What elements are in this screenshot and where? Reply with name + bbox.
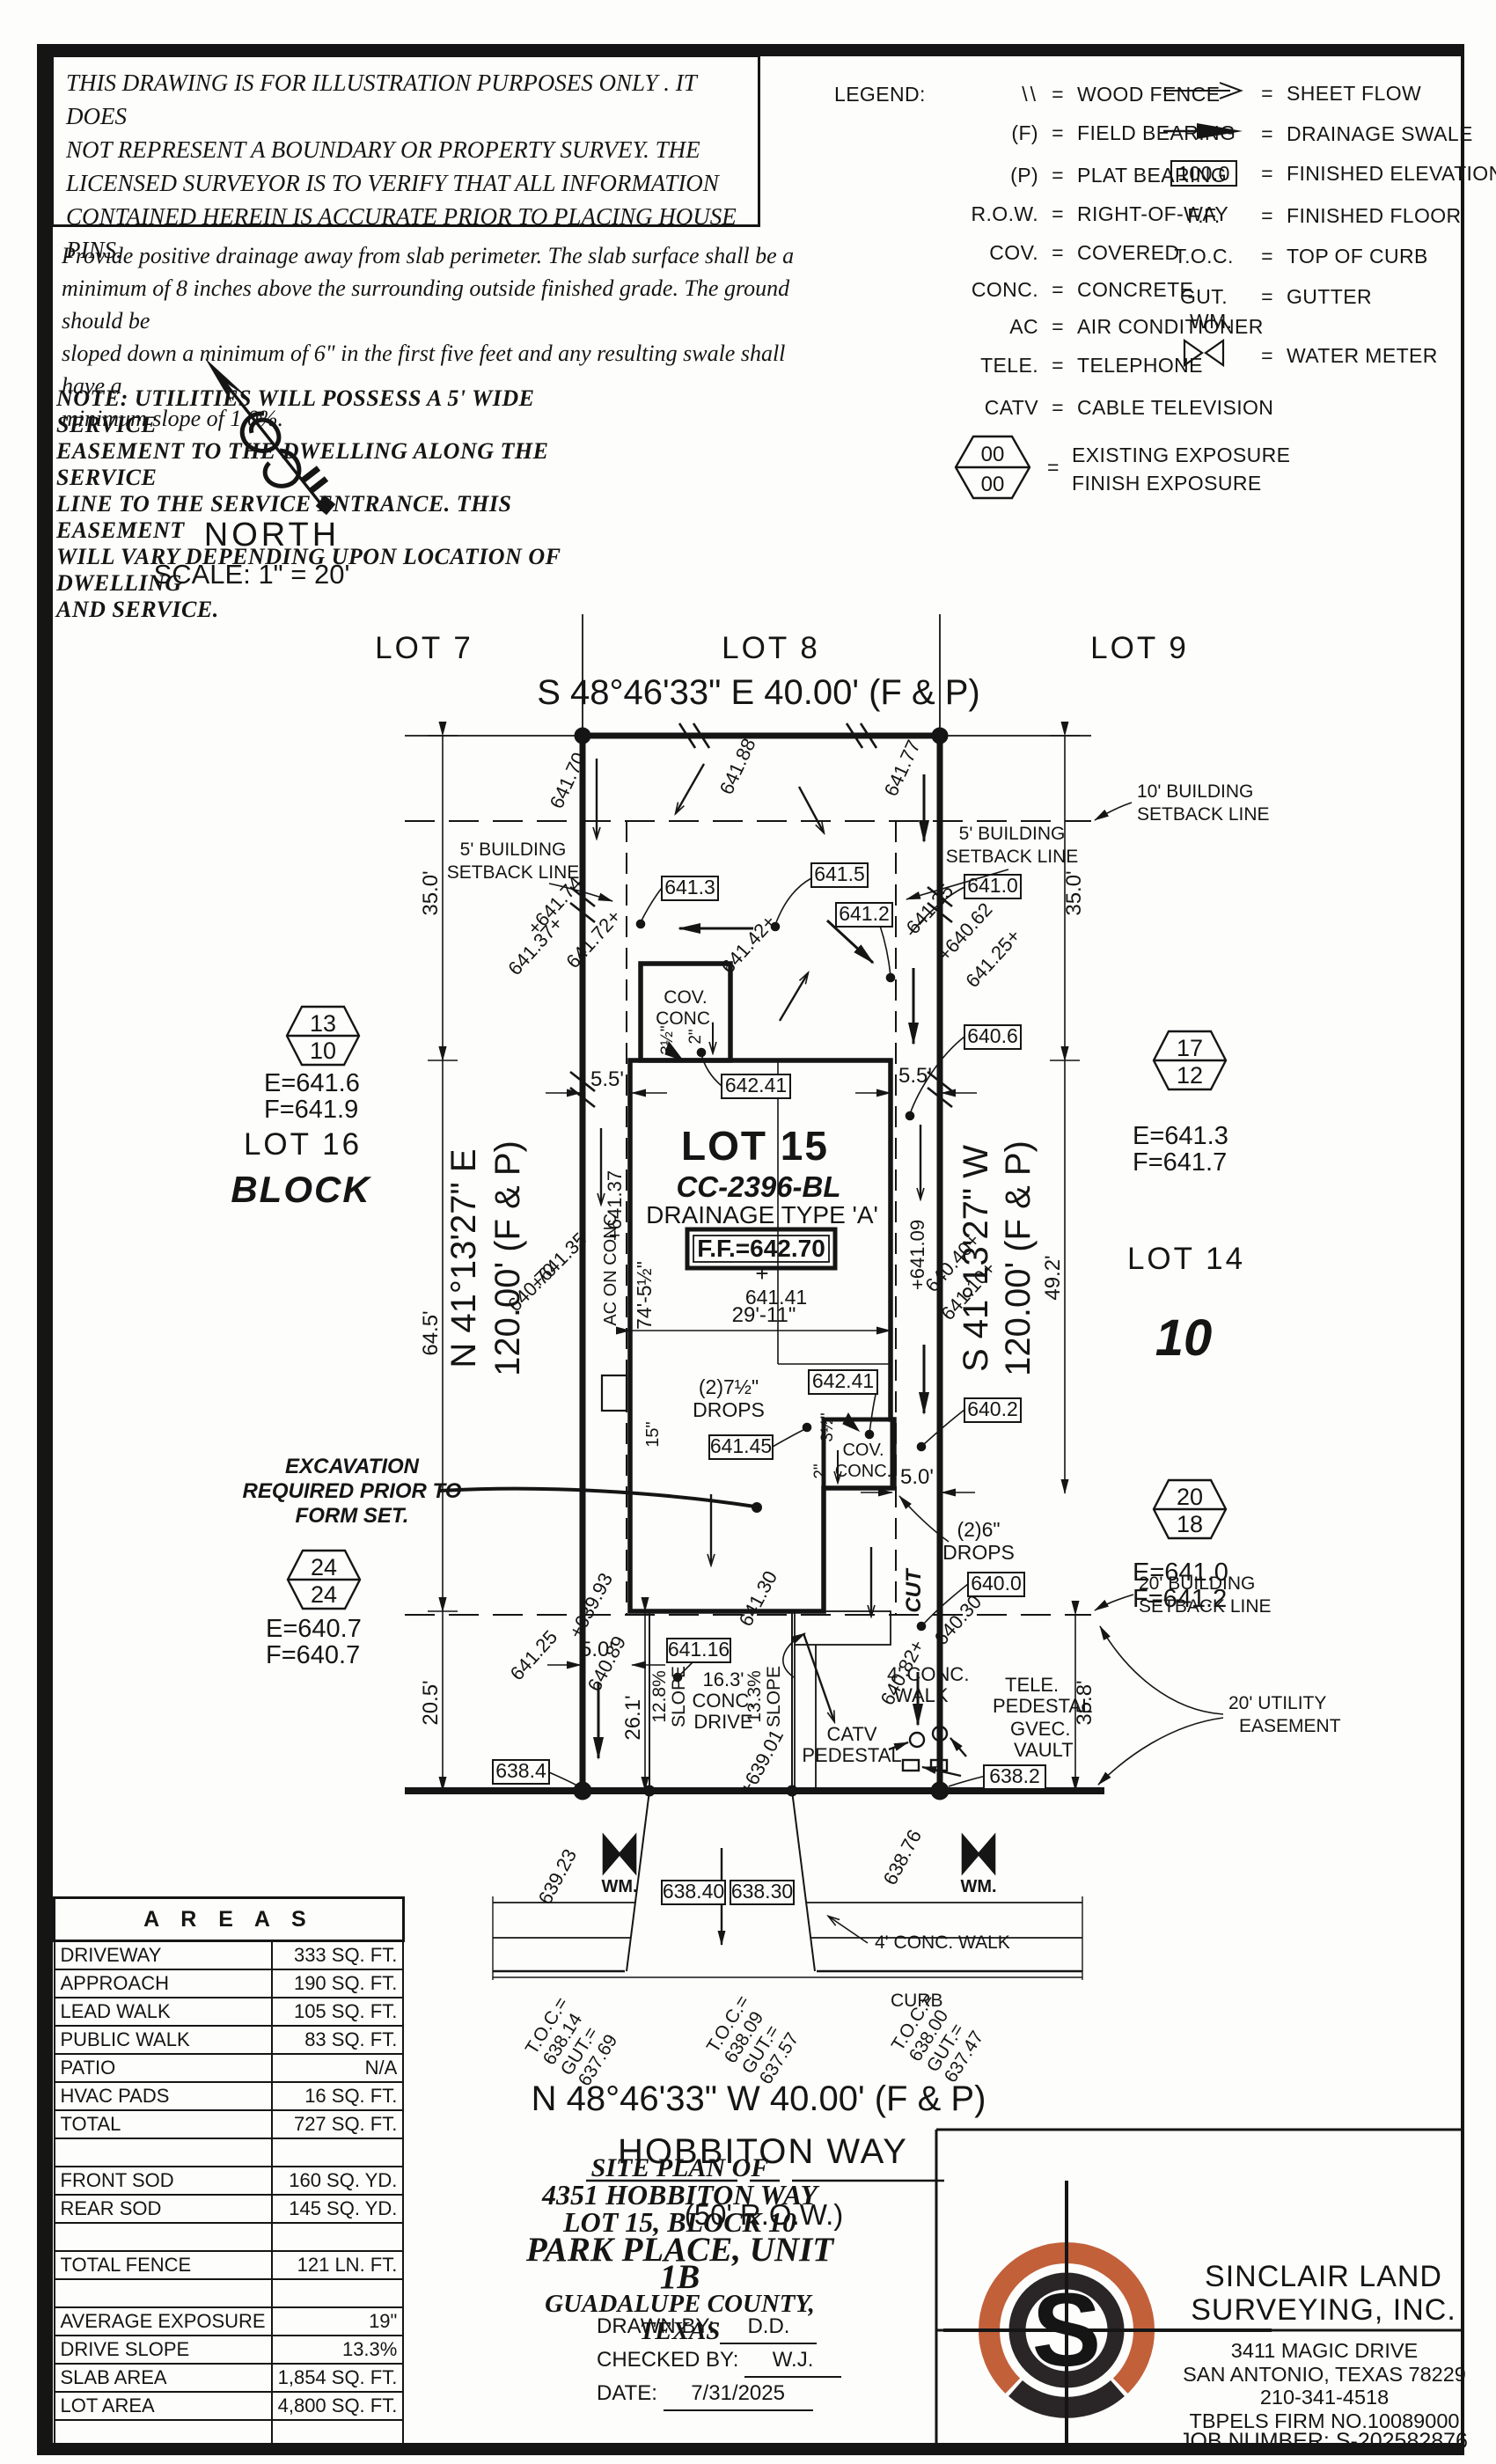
table-row: APPROACH190 SQ. FT. [55,1969,404,1998]
table-row [55,2223,404,2251]
svg-text:SETBACK LINE: SETBACK LINE [1137,804,1270,825]
utility-note-line: EASEMENT TO THE DWELLING ALONG THE SERVI… [56,438,620,491]
drawn-by-block: DRAWN BY: D.D. CHECKED BY: W.J. DATE: 7/… [597,2311,887,2411]
svg-text:WM.: WM. [960,1877,996,1896]
utility-note-line: AND SERVICE. [56,597,620,623]
svg-text:13: 13 [310,1010,336,1037]
surveyor-address-line: SAN ANTONIO, TEXAS 78229 [1179,2363,1470,2387]
svg-text:4' CONC. WALK: 4' CONC. WALK [875,1932,1010,1953]
table-row: PATION/A [55,2054,404,2082]
svg-text:TELE.: TELE. [1005,1674,1059,1696]
date-value: 7/31/2025 [664,2378,813,2411]
svg-text:17: 17 [1177,1035,1203,1061]
field-bearing-symbol: (F) [940,121,1038,145]
gut-abbrev: GUT. [1160,285,1248,309]
table-row: LOT AREA4,800 SQ. FT. [55,2392,404,2420]
disclaimer-line: LICENSED SURVEYOR IS TO VERIFY THAT ALL … [66,166,745,200]
legend-exposure-desc2: FINISH EXPOSURE [1072,472,1262,495]
svg-text:641.42+: 641.42+ [716,911,780,978]
catv-abbrev: CATV [940,396,1038,420]
svg-text:20: 20 [1177,1484,1203,1510]
svg-text:26.1': 26.1' [621,1695,645,1740]
svg-text:N 48°46'33" W 40.00' (F & P): N 48°46'33" W 40.00' (F & P) [532,2079,986,2118]
svg-text:N 41°13'27" E: N 41°13'27" E [444,1148,483,1368]
legend-title: LEGEND: [834,83,926,106]
legend-desc: TOP OF CURB [1287,245,1428,268]
ac-abbrev: AC [940,315,1038,339]
drainage-type: DRAINAGE TYPE 'A' [646,1201,878,1228]
drainage-swale-icon [1160,121,1248,146]
svg-text:E=641.3: E=641.3 [1133,1122,1228,1150]
svg-text:10' BUILDING: 10' BUILDING [1137,781,1253,802]
svg-text:641.45: 641.45 [710,1434,772,1457]
legend-desc: FINISHED FLOOR [1287,204,1462,228]
surveyor-name: SINCLAIR LAND SURVEYING, INC. [1184,2260,1463,2327]
svg-text:00: 00 [981,443,1005,466]
svg-text:640.6: 640.6 [967,1024,1018,1047]
svg-text:2": 2" [811,1463,830,1478]
finished-elevation-box: 100.0 [1160,162,1248,186]
svg-text:F=640.7: F=640.7 [266,1641,360,1669]
drawn-by-label: DRAWN BY: [597,2314,715,2338]
areas-title: A R E A S [55,1898,404,1941]
table-row: TOTAL727 SQ. FT. [55,2110,404,2138]
svg-text:CONC.: CONC. [835,1462,891,1481]
table-row: DRIVE SLOPE13.3% [55,2336,404,2364]
svg-text:35.0': 35.0' [1062,870,1086,915]
svg-text:+: + [755,1260,768,1287]
cc-number: CC-2396-BL [676,1170,840,1203]
utility-note-line: WILL VARY DEPENDING UPON LOCATION OF DWE… [56,544,620,597]
exposure-hexagon-icon: 00 00 [952,433,1033,502]
svg-text:+639.93: +639.93 [565,1569,618,1641]
svg-text:638.4: 638.4 [495,1759,546,1782]
svg-text:641.72+: 641.72+ [561,906,625,972]
surveyor-phone: 210-341-4518 [1179,2386,1470,2409]
flag-13-10: 13 10 E=641.6 F=641.9 [264,1007,360,1124]
legend-row-gutter: GUT. =GUTTER [1160,285,1372,309]
sheet-flow-icon [1160,81,1248,106]
svg-text:WALK: WALK [894,1684,949,1706]
svg-text:641.2: 641.2 [839,902,890,925]
disclaimer-line: NOT REPRESENT A BOUNDARY OR PROPERTY SUR… [66,133,745,166]
svg-text:638.76: 638.76 [879,1826,927,1888]
svg-text:5.5': 5.5' [590,1067,624,1091]
svg-text:120.00' (F & P): 120.00' (F & P) [488,1140,527,1376]
flag-24-24: 24 24 E=640.7 F=640.7 [266,1551,362,1669]
svg-text:E=641.6: E=641.6 [264,1069,360,1097]
block-label: BLOCK [231,1169,371,1210]
ff-abbrev: F.F. [1160,204,1248,228]
svg-text:VAULT: VAULT [1014,1739,1074,1761]
svg-text:E=640.7: E=640.7 [266,1615,362,1643]
svg-text:641.30: 641.30 [735,1567,782,1630]
svg-text:CONC.: CONC. [693,1690,755,1712]
svg-text:120.00' (F & P): 120.00' (F & P) [999,1140,1038,1376]
table-row [55,2138,404,2167]
svg-text:(2)7½": (2)7½" [699,1375,759,1398]
drainage-note-line: Provide positive drainage away from slab… [62,239,801,272]
svg-text:641.3: 641.3 [664,876,715,898]
svg-text:FORM SET.: FORM SET. [296,1504,409,1528]
svg-text:PEDESTAL: PEDESTAL [993,1695,1092,1717]
svg-text:00: 00 [981,473,1005,496]
svg-text:LOT 8: LOT 8 [722,631,820,665]
legend-desc: AIR CONDITIONER [1077,315,1264,339]
svg-text:(2)6": (2)6" [957,1518,1000,1541]
legend-desc: SHEET FLOW [1287,82,1421,106]
table-row: LEAD WALK105 SQ. FT. [55,1998,404,2026]
svg-text:641.0: 641.0 [967,874,1018,897]
legend-row-catv: CATV=CABLE TELEVISION [940,396,1273,420]
svg-text:642.41: 642.41 [725,1074,787,1096]
svg-text:5' BUILDING: 5' BUILDING [460,840,567,860]
svg-text:DRIVE: DRIVE [693,1711,752,1733]
svg-text:20' UTILITY: 20' UTILITY [1228,1693,1326,1713]
svg-text:SETBACK LINE: SETBACK LINE [946,847,1079,867]
svg-text:SLOPE: SLOPE [669,1666,689,1727]
disclaimer-note: THIS DRAWING IS FOR ILLUSTRATION PURPOSE… [51,55,760,227]
utility-note-line: NOTE: UTILITIES WILL POSSESS A 5' WIDE S… [56,385,620,438]
svg-text:GVEC.: GVEC. [1010,1718,1070,1740]
svg-text:AC ON CONC.: AC ON CONC. [601,1208,620,1325]
svg-text:12: 12 [1177,1062,1203,1089]
wood-fence-symbol: \\ [940,83,1038,106]
svg-text:641.41: 641.41 [745,1286,807,1309]
surveyor-name-line: SINCLAIR LAND [1184,2260,1463,2293]
svg-text:4' CONC.: 4' CONC. [887,1663,969,1685]
legend-desc: CABLE TELEVISION [1077,396,1273,420]
tele-abbrev: TELE. [940,354,1038,378]
svg-text:CONC.: CONC. [656,1008,715,1029]
svg-text:49.2': 49.2' [1041,1255,1065,1300]
svg-text:15": 15" [643,1421,663,1447]
legend-row-sheet-flow: =SHEET FLOW [1160,81,1421,106]
table-row: AVERAGE EXPOSURE19" [55,2307,404,2336]
svg-text:REQUIRED PRIOR TO: REQUIRED PRIOR TO [243,1479,462,1503]
svg-text:S 48°46'33" E 40.00' (F & P): S 48°46'33" E 40.00' (F & P) [537,673,980,712]
conc-abbrev: CONC. [940,278,1038,302]
titleblock-line: SITE PLAN OF [506,2154,854,2182]
table-row [55,2420,404,2448]
svg-text:PEDESTAL: PEDESTAL [802,1744,901,1766]
svg-text:10: 10 [310,1038,336,1064]
svg-text:24: 24 [311,1554,337,1580]
block-number: 10 [1155,1309,1213,1367]
utility-easement-note: NOTE: UTILITIES WILL POSSESS A 5' WIDE S… [56,385,620,623]
svg-text:642.41: 642.41 [812,1369,874,1392]
svg-text:641.25: 641.25 [506,1626,562,1685]
svg-text:639.23: 639.23 [534,1845,582,1908]
svg-text:3½": 3½" [658,1025,677,1054]
svg-text:CUT: CUT [902,1567,926,1613]
table-row: HVAC PADS16 SQ. FT. [55,2082,404,2110]
svg-text:DROPS: DROPS [942,1541,1015,1564]
svg-text:SETBACK LINE: SETBACK LINE [447,862,580,883]
svg-text:SLOPE: SLOPE [764,1666,784,1727]
svg-text:COV.: COV. [842,1441,884,1460]
table-row [55,2279,404,2307]
svg-text:CATV: CATV [826,1723,876,1745]
svg-text:5' BUILDING: 5' BUILDING [959,824,1066,844]
legend-row-drainage-swale: =DRAINAGE SWALE [1160,121,1473,146]
row-abbrev: R.O.W. [940,202,1038,226]
drawn-by-value: D.D. [720,2311,817,2344]
svg-text:5.0': 5.0' [900,1465,934,1489]
svg-text:74'-5½": 74'-5½" [633,1261,656,1330]
svg-text:24: 24 [311,1581,337,1608]
checked-by-label: CHECKED BY: [597,2348,738,2372]
legend-desc: WATER METER [1287,344,1438,368]
cov-abbrev: COV. [940,241,1038,265]
svg-text:LOT 14: LOT 14 [1127,1242,1245,1276]
svg-text:LOT 7: LOT 7 [375,631,473,665]
surveyor-address: 3411 MAGIC DRIVE SAN ANTONIO, TEXAS 7822… [1179,2339,1470,2432]
legend-exposure-desc1: EXISTING EXPOSURE [1072,444,1290,467]
surveyor-address-line: 3411 MAGIC DRIVE [1179,2339,1470,2363]
utility-note-line: LINE TO THE SERVICE ENTRANCE. THIS EASEM… [56,491,620,544]
legend-desc: GUTTER [1287,285,1372,309]
svg-text:S 41°13'27" W: S 41°13'27" W [957,1145,995,1372]
misc-leaders [783,1496,949,1943]
table-row: PUBLIC WALK83 SQ. FT. [55,2026,404,2054]
flag-17-12: 17 12 E=641.3 F=641.7 [1133,1031,1228,1177]
svg-text:18: 18 [1177,1511,1203,1537]
svg-text:F=641.7: F=641.7 [1133,1148,1227,1177]
table-row: REAR SOD145 SQ. YD. [55,2195,404,2223]
legend-row-finished-elevation: 100.0 =FINISHED ELEVATION [1160,162,1496,186]
drainage-note-line: minimum of 8 inches above the surroundin… [62,272,801,337]
svg-text:SETBACK LINE: SETBACK LINE [1139,1596,1272,1617]
svg-text:COV.: COV. [664,987,707,1008]
toc-gut-callouts: T.O.C.= 638.14 GUT.= 637.69 T.O.C.= 638.… [522,1991,988,2090]
svg-text:DROPS: DROPS [693,1398,765,1421]
svg-text:640.2: 640.2 [967,1397,1018,1420]
svg-text:35.0': 35.0' [419,870,443,915]
exposure-flags: 13 10 E=641.6 F=641.9 17 12 E=641.3 F=64… [264,1007,1228,1669]
surveyor-name-line: SURVEYING, INC. [1184,2293,1463,2327]
svg-text:LOT 9: LOT 9 [1090,631,1189,665]
svg-text:WM.: WM. [601,1877,637,1896]
svg-text:638.30: 638.30 [731,1880,793,1903]
svg-text:641.77: 641.77 [880,737,925,800]
areas-table: A R E A S DRIVEWAY333 SQ. FT. APPROACH19… [53,1896,405,2449]
svg-text:638.40: 638.40 [663,1880,724,1903]
svg-text:F=641.9: F=641.9 [264,1096,358,1124]
svg-text:20.5': 20.5' [419,1680,443,1725]
table-row: TOTAL FENCE121 LN. FT. [55,2251,404,2279]
legend-exposure-eq: = [1047,456,1060,480]
svg-text:641.88: 641.88 [715,735,760,798]
legend-row-finished-floor: F.F. =FINISHED FLOOR [1160,204,1462,228]
titleblock-line: PARK PLACE, UNIT 1B [506,2236,854,2291]
legend-row-top-of-curb: T.O.C. =TOP OF CURB [1160,245,1428,268]
plat-bearing-symbol: (P) [940,164,1038,187]
legend-row-water-meter: =WATER METER [1160,338,1438,373]
svg-text:64.5': 64.5' [419,1310,443,1355]
svg-text:641.16: 641.16 [668,1638,730,1661]
lot15-label: LOT 15 [681,1123,829,1169]
svg-text:638.2: 638.2 [989,1764,1040,1787]
svg-text:2": 2" [686,1029,705,1044]
legend-row-concrete: CONC.=CONCRETE [940,278,1193,302]
legend-row-covered: COV.=COVERED [940,241,1180,265]
water-meter-icon [1160,338,1248,373]
excavation-note: EXCAVATION REQUIRED PRIOR TO FORM SET. [243,1455,762,1528]
svg-text:20' BUILDING: 20' BUILDING [1139,1573,1255,1594]
svg-text:3½": 3½" [818,1412,837,1441]
table-row: SLAB AREA1,854 SQ. FT. [55,2364,404,2392]
svg-text:16.3': 16.3' [702,1668,744,1690]
checked-by-value: W.J. [744,2344,841,2378]
legend-desc: DRAINAGE SWALE [1287,122,1473,146]
svg-text:EASEMENT: EASEMENT [1239,1716,1341,1736]
table-row: FRONT SOD160 SQ. YD. [55,2167,404,2195]
job-number: JOB NUMBER: S-202582876 [1177,2429,1470,2454]
toc-abbrev: T.O.C. [1160,245,1248,268]
wm-abbrev: WM. [1190,310,1232,334]
svg-text:641.5: 641.5 [814,862,865,885]
titleblock-line: 4351 HOBBITON WAY [506,2182,854,2209]
svg-text:EXCAVATION: EXCAVATION [285,1455,420,1478]
svg-text:F.F.=642.70: F.F.=642.70 [697,1235,825,1262]
disclaimer-line: THIS DRAWING IS FOR ILLUSTRATION PURPOSE… [66,66,745,133]
svg-text:5.5': 5.5' [898,1064,932,1088]
table-row: DRIVEWAY333 SQ. FT. [55,1941,404,1970]
svg-text:12.8%: 12.8% [649,1670,670,1723]
svg-text:LOT 16: LOT 16 [244,1127,362,1162]
legend-desc: FINISHED ELEVATION [1287,162,1496,186]
date-label: DATE: [597,2381,657,2405]
svg-text:640.0: 640.0 [971,1572,1022,1595]
